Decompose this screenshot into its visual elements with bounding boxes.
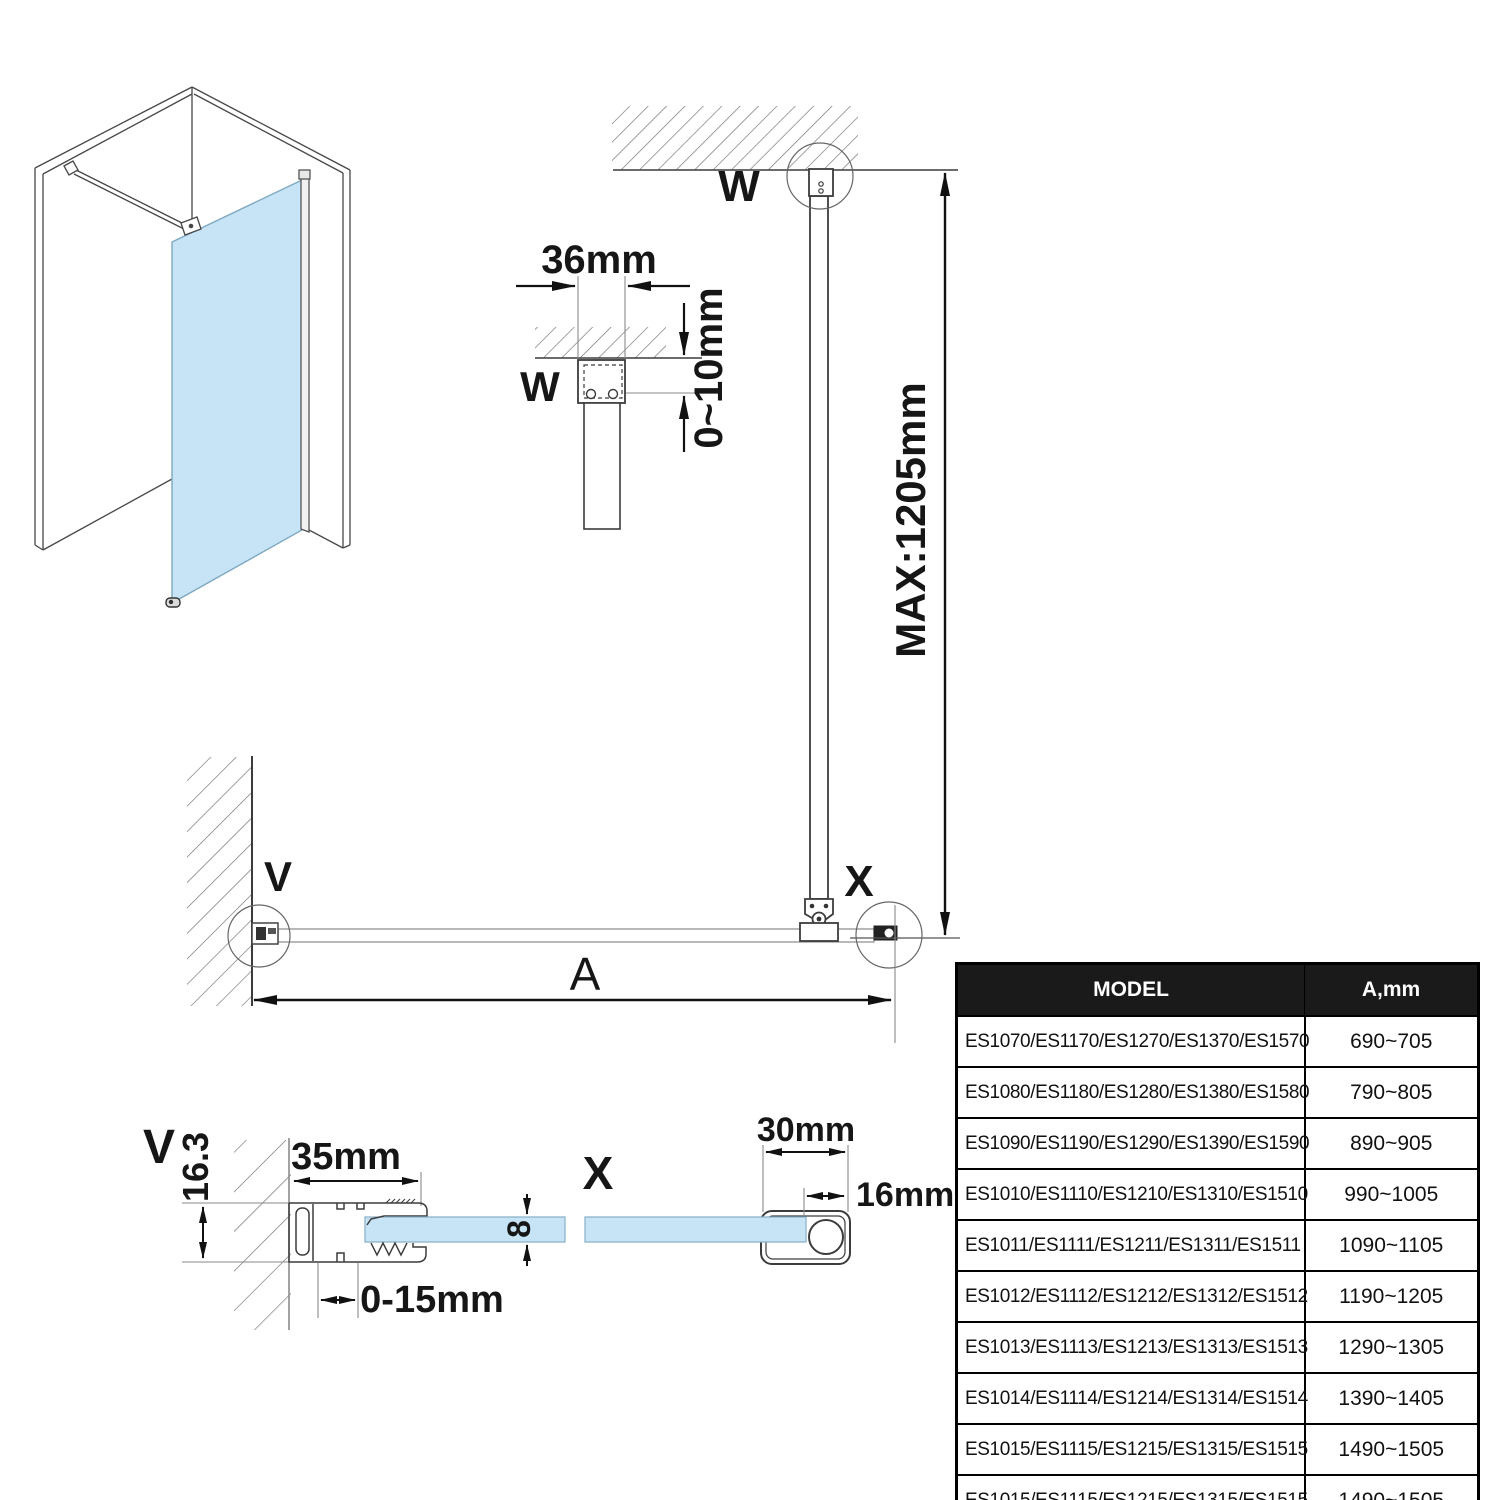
model-cell: ES1011/ES1111/ES1211/ES1311/ES1511	[957, 1220, 1305, 1271]
a-value-cell: 990~1005	[1305, 1169, 1479, 1220]
iso-glass-panel	[172, 180, 302, 603]
model-cell: ES1013/ES1113/ES1213/ES1313/ES1513	[957, 1322, 1305, 1373]
glass-edge	[278, 929, 874, 942]
bar-circle	[809, 1220, 843, 1254]
dim-16-3: 16.3	[175, 1132, 216, 1202]
model-cell: ES1014/ES1114/ES1214/ES1314/ES1514	[957, 1373, 1305, 1424]
table-row: ES1010/ES1110/ES1210/ES1310/ES1510990~10…	[957, 1169, 1479, 1220]
detail-w-label: W	[520, 363, 560, 410]
model-table: MODEL A,mm ES1070/ES1170/ES1270/ES1370/E…	[955, 962, 1480, 1500]
table-row: ES1080/ES1180/ES1280/ES1380/ES1580790~80…	[957, 1067, 1479, 1118]
col-header-a: A,mm	[1305, 964, 1479, 1017]
bar-stub	[584, 403, 620, 529]
detail-x-label: X	[583, 1147, 614, 1199]
a-value-cell: 890~905	[1305, 1118, 1479, 1169]
table-header-row: MODEL A,mm	[957, 964, 1479, 1017]
iso-glass-foot	[166, 598, 180, 607]
dim-0-15mm: 0-15mm	[360, 1279, 504, 1321]
dim-36mm: 36mm	[541, 238, 657, 282]
a-value-cell: 790~805	[1305, 1067, 1479, 1118]
dim-0-10mm: 0~10mm	[687, 287, 731, 448]
a-value-cell: 690~705	[1305, 1016, 1479, 1067]
dim-a: A	[570, 948, 601, 1000]
label-w: W	[718, 162, 760, 211]
model-cell: ES1015/ES1115/ES1215/ES1315/ES1515	[957, 1424, 1305, 1475]
bar-glass-clamp	[800, 899, 838, 941]
a-value-cell: 1090~1105	[1305, 1220, 1479, 1271]
model-table-body: ES1070/ES1170/ES1270/ES1370/ES1570690~70…	[957, 1016, 1479, 1500]
wall-profile-clamp	[252, 923, 278, 944]
dim-16mm: 16mm	[856, 1176, 954, 1214]
detail-v-section: V 16.3 35mm	[143, 1121, 565, 1330]
top-bracket	[809, 169, 833, 196]
dim-30mm: 30mm	[757, 1111, 855, 1149]
model-cell: ES1080/ES1180/ES1280/ES1380/ES1580	[957, 1067, 1305, 1118]
ceiling-hatch	[612, 106, 858, 170]
dim-8: 8	[501, 1220, 537, 1238]
table-row: ES1012/ES1112/ES1212/ES1312/ES15121190~1…	[957, 1271, 1479, 1322]
wall-hatch	[187, 757, 252, 1006]
detail-v-label: V	[143, 1121, 175, 1174]
iso-view	[35, 87, 350, 607]
table-row: ES1090/ES1190/ES1290/ES1390/ES1590890~90…	[957, 1118, 1479, 1169]
table-row: ES1015/ES1115/ES1215/ES1315/ES15151490~1…	[957, 1424, 1479, 1475]
table-row: ES1015/ES1115/ES1215/ES1315/ES15151490~1…	[957, 1475, 1479, 1500]
a-value-cell: 1190~1205	[1305, 1271, 1479, 1322]
a-value-cell: 1490~1505	[1305, 1424, 1479, 1475]
a-value-cell: 1490~1505	[1305, 1475, 1479, 1500]
table-row: ES1013/ES1113/ES1213/ES1313/ES15131290~1…	[957, 1322, 1479, 1373]
iso-wall-profile	[299, 170, 310, 532]
dim-max-1205: MAX:1205mm	[887, 382, 934, 657]
table-row: ES1011/ES1111/ES1211/ES1311/ES15111090~1…	[957, 1220, 1479, 1271]
glass-section-x	[585, 1217, 806, 1242]
wall-hatch-section	[234, 1140, 291, 1330]
table-row: ES1070/ES1170/ES1270/ES1370/ES1570690~70…	[957, 1016, 1479, 1067]
a-value-cell: 1290~1305	[1305, 1322, 1479, 1373]
label-v: V	[264, 853, 292, 900]
iso-left-wall	[35, 87, 192, 550]
label-x: X	[844, 857, 873, 906]
spring-zigzag	[371, 1243, 407, 1255]
col-header-model: MODEL	[957, 964, 1305, 1017]
detail-w-callout: 36mm 0~10mm W	[516, 238, 731, 529]
support-bar	[810, 196, 828, 899]
model-cell: ES1070/ES1170/ES1270/ES1370/ES1570	[957, 1016, 1305, 1067]
ceiling-bracket	[578, 360, 625, 403]
iso-support-bar	[64, 161, 201, 235]
dim-35mm: 35mm	[291, 1136, 401, 1178]
model-cell: ES1090/ES1190/ES1290/ES1390/ES1590	[957, 1118, 1305, 1169]
detail-x-section: X 30mm 16mm	[583, 1111, 955, 1264]
model-cell: ES1015/ES1115/ES1215/ES1315/ES1515	[957, 1475, 1305, 1500]
model-cell: ES1010/ES1110/ES1210/ES1310/ES1510	[957, 1169, 1305, 1220]
ceiling-hatch-small	[535, 327, 666, 358]
model-cell: ES1012/ES1112/ES1212/ES1312/ES1512	[957, 1271, 1305, 1322]
a-value-cell: 1390~1405	[1305, 1373, 1479, 1424]
table-row: ES1014/ES1114/ES1214/ES1314/ES15141390~1…	[957, 1373, 1479, 1424]
diagram-canvas: 36mm 0~10mm W	[0, 0, 1500, 1500]
